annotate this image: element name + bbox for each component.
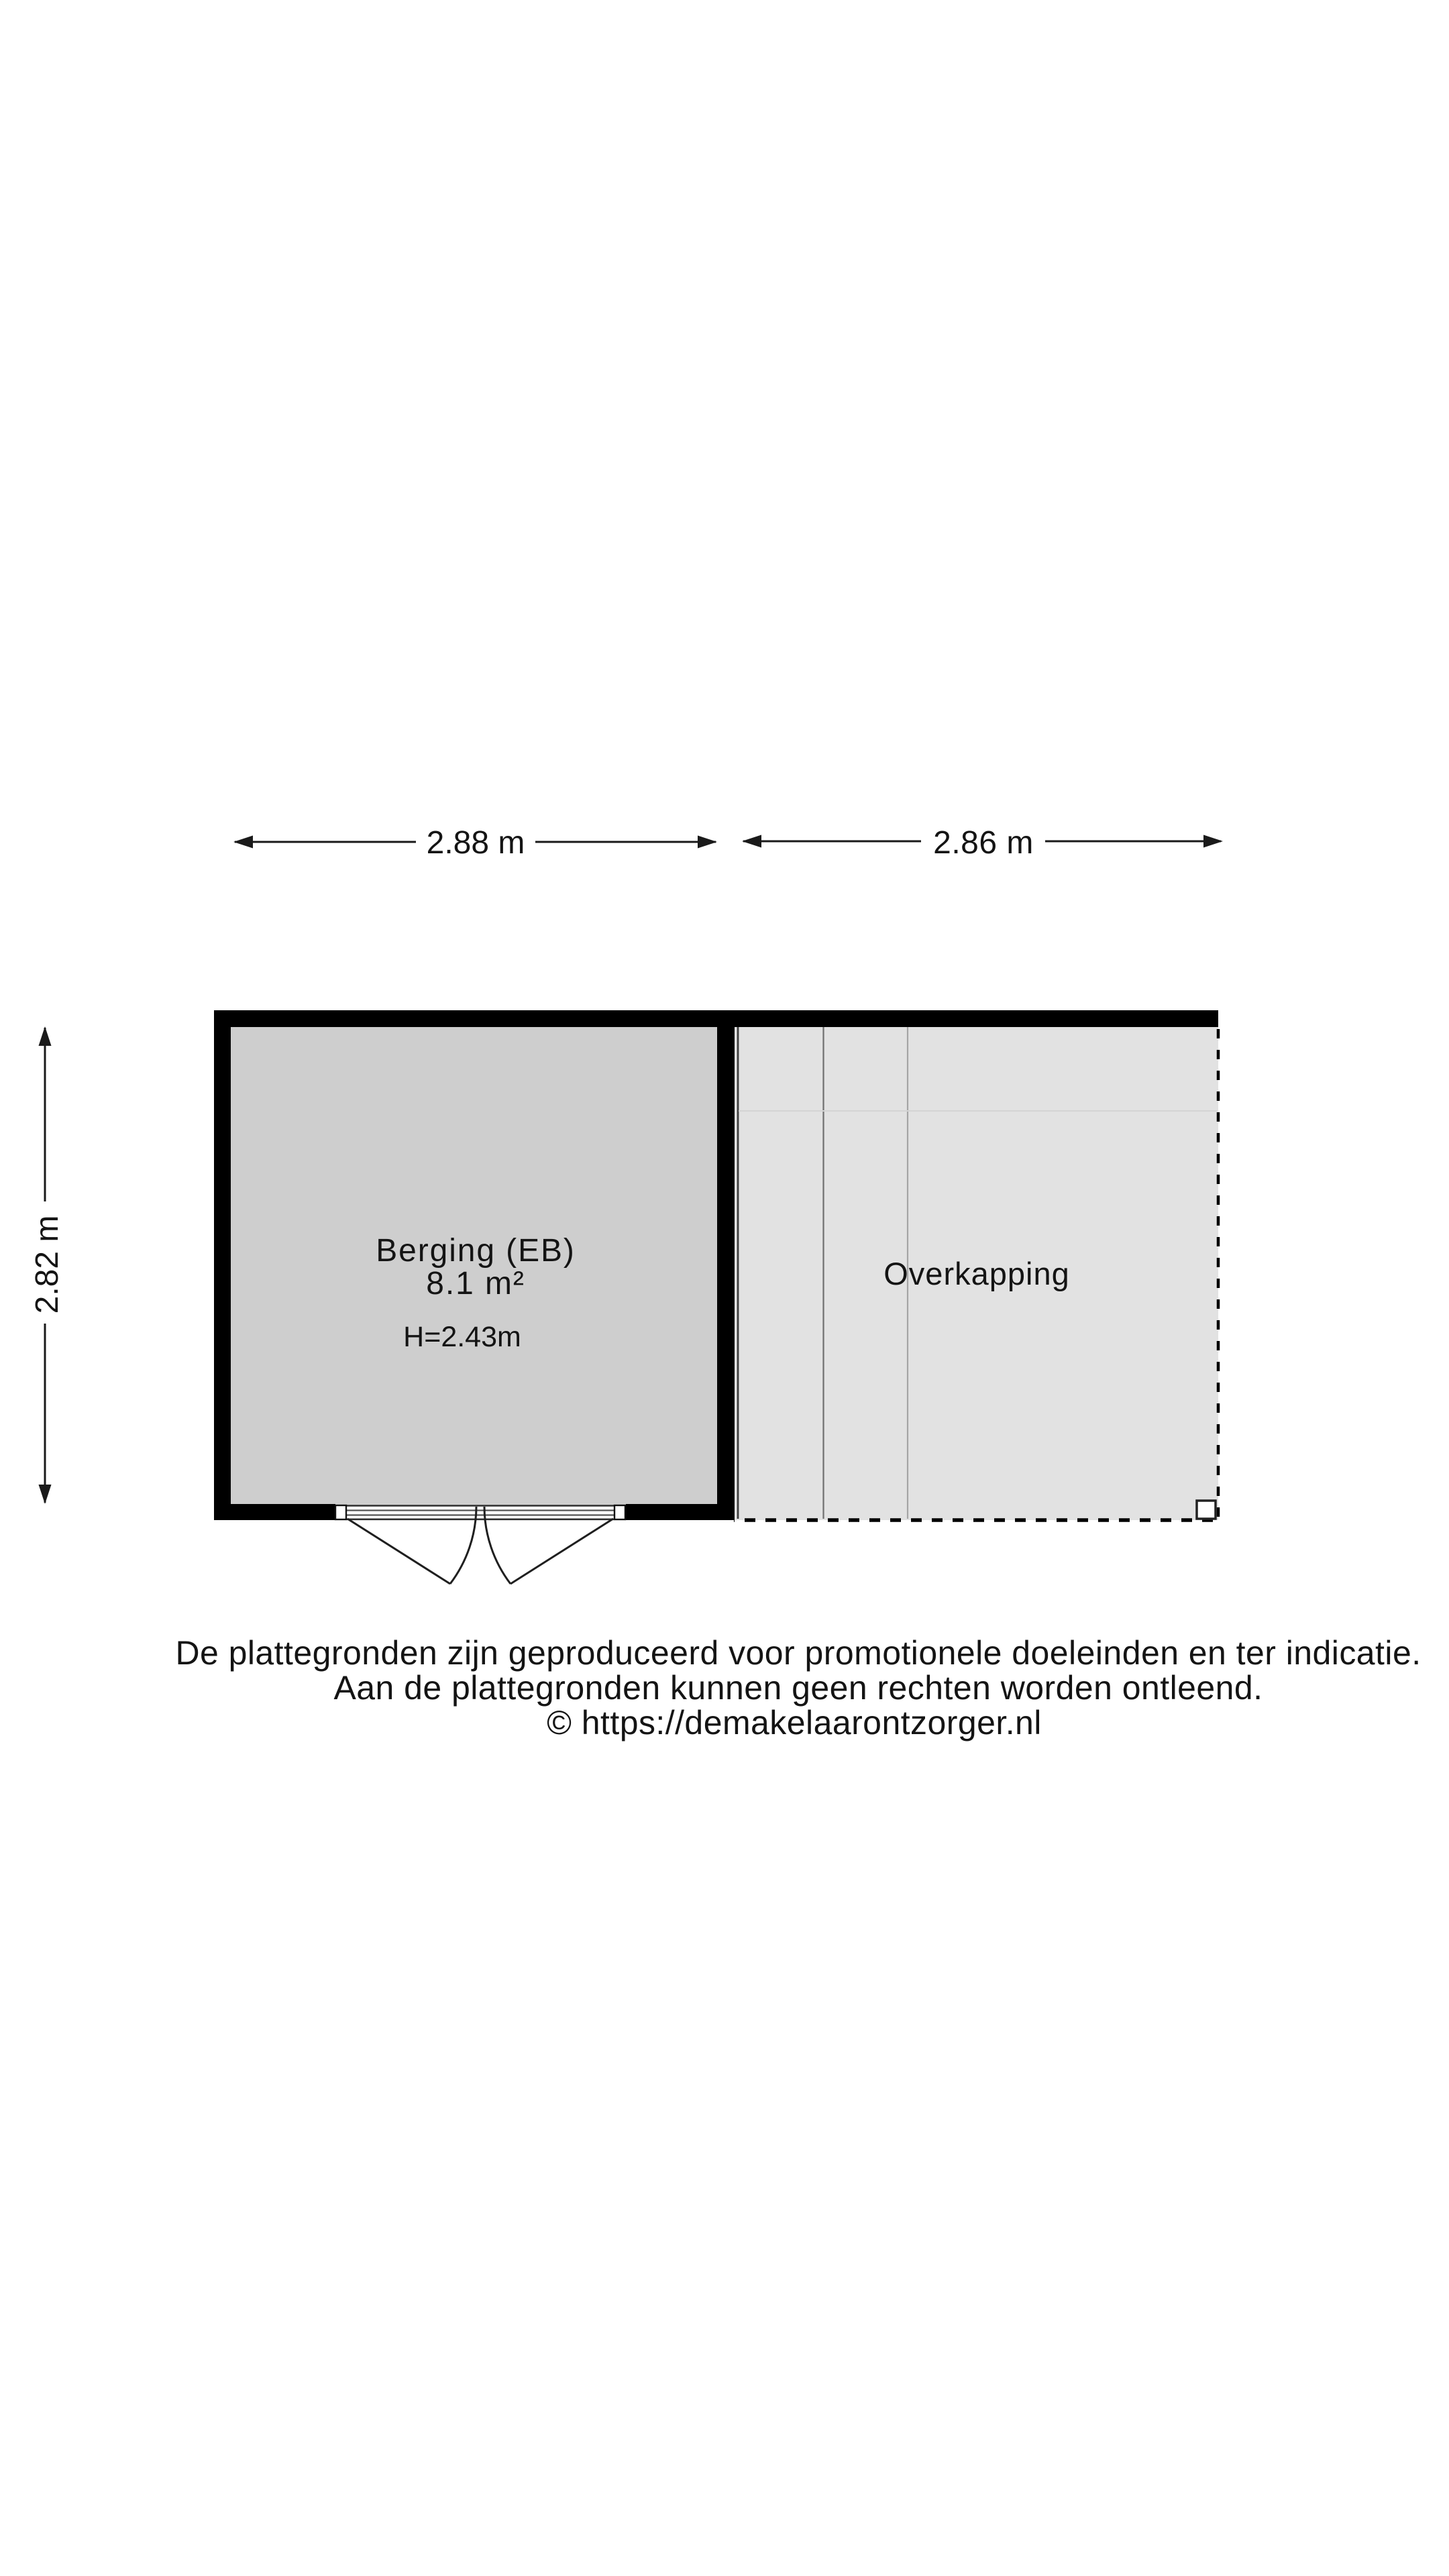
svg-text:2.86 m: 2.86 m — [933, 825, 1034, 861]
svg-text:2.82 m: 2.82 m — [30, 1216, 65, 1314]
svg-text:De plattegronden zijn geproduc: De plattegronden zijn geproduceerd voor … — [175, 1634, 1421, 1672]
svg-text:© https://demakelaarontzorger.: © https://demakelaarontzorger.nl — [547, 1704, 1042, 1741]
svg-text:Aan de plattegronden kunnen ge: Aan de plattegronden kunnen geen rechten… — [333, 1669, 1263, 1707]
svg-text:2.88 m: 2.88 m — [427, 825, 525, 861]
svg-text:H=2.43m: H=2.43m — [403, 1321, 521, 1353]
svg-text:8.1 m²: 8.1 m² — [426, 1266, 525, 1301]
svg-text:Berging (EB): Berging (EB) — [376, 1233, 576, 1269]
svg-text:Overkapping: Overkapping — [883, 1256, 1070, 1291]
